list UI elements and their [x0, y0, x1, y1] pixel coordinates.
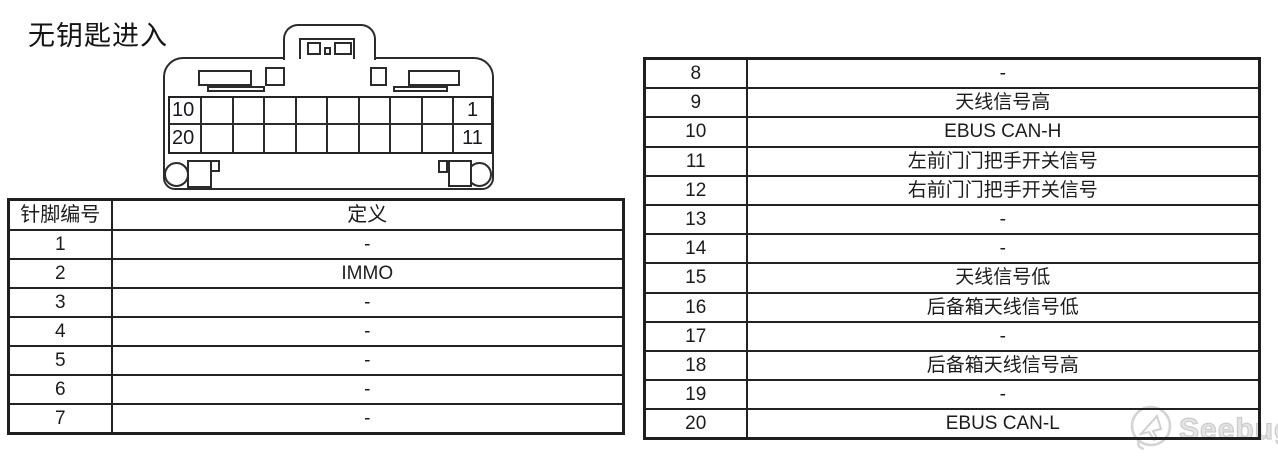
table-row: 17-	[645, 322, 1260, 351]
table-row: 6-	[9, 375, 624, 404]
table-row: 19-	[645, 380, 1260, 409]
pin-cell	[423, 98, 455, 125]
pin-number-cell: 15	[645, 263, 747, 292]
table-row: 8-	[645, 59, 1260, 89]
pin-definition-cell: 天线信号高	[747, 88, 1260, 117]
pin-number-cell: 10	[645, 117, 747, 146]
pin-number-cell: 5	[9, 346, 112, 375]
pin-cell	[391, 98, 423, 125]
table-row: 15天线信号低	[645, 263, 1260, 292]
table-row: 14-	[645, 234, 1260, 263]
table-row: 16后备箱天线信号低	[645, 293, 1260, 322]
table-row: 7-	[9, 404, 624, 434]
connector-tab-right-lip	[393, 86, 448, 92]
table-row: 18后备箱天线信号高	[645, 351, 1260, 380]
connector-square-right	[370, 67, 387, 86]
pin-cell: 11	[454, 125, 491, 152]
pin-definition-cell: 后备箱天线信号低	[747, 293, 1260, 322]
pin-definition-cell: -	[112, 288, 624, 317]
table-row: 1-	[9, 230, 624, 259]
connector-tab-left	[198, 70, 252, 86]
pin-cell	[297, 98, 329, 125]
pin-cell: 20	[170, 125, 202, 152]
pin-cell	[328, 98, 360, 125]
pin-definition-cell: -	[112, 346, 624, 375]
pin-definition-cell: -	[112, 317, 624, 346]
pin-cell	[391, 125, 423, 152]
pin-definition-cell: EBUS CAN-H	[747, 117, 1260, 146]
pin-number-cell: 17	[645, 322, 747, 351]
pin-definition-cell: EBUS CAN-L	[747, 409, 1260, 439]
pin-cell	[234, 98, 266, 125]
pin-definition-cell: 天线信号低	[747, 263, 1260, 292]
pin-cell	[265, 125, 297, 152]
pin-definition-cell: 左前门门把手开关信号	[747, 147, 1260, 176]
pin-definition-cell: -	[747, 322, 1260, 351]
pin-cell	[265, 98, 297, 125]
pin-cell	[328, 125, 360, 152]
pin-cell: 1	[454, 98, 491, 125]
connector-diagram: 1012011	[163, 15, 497, 195]
table-row: 20EBUS CAN-L	[645, 409, 1260, 439]
pin-number-cell: 14	[645, 234, 747, 263]
table-row: 4-	[9, 317, 624, 346]
pin-definition-cell: 后备箱天线信号高	[747, 351, 1260, 380]
pin-number-cell: 8	[645, 59, 747, 89]
connector-foot-circle-left	[164, 162, 189, 187]
document-page: 无钥匙进入 Seebug 1012011	[0, 0, 1278, 457]
pin-cell	[202, 125, 234, 152]
pin-number-cell: 20	[645, 409, 747, 439]
connector-foot-rect-left	[187, 160, 212, 188]
connector-latch-square-right	[334, 42, 352, 55]
table-row: 9天线信号高	[645, 88, 1260, 117]
pin-number-cell: 6	[9, 375, 112, 404]
table-row: 10EBUS CAN-H	[645, 117, 1260, 146]
pin-number-cell: 1	[9, 230, 112, 259]
page-title: 无钥匙进入	[28, 14, 168, 53]
table-row: 5-	[9, 346, 624, 375]
pin-number-cell: 2	[9, 259, 112, 288]
pin-number-cell: 18	[645, 351, 747, 380]
pin-cell	[234, 125, 266, 152]
pin-number-cell: 4	[9, 317, 112, 346]
pin-cell	[360, 125, 392, 152]
pin-definition-table-left: 针脚编号 定义 1-2IMMO3-4-5-6-7-	[7, 198, 625, 435]
pin-number-cell: 16	[645, 293, 747, 322]
pin-definition-cell: -	[112, 230, 624, 259]
definition-header: 定义	[112, 200, 624, 231]
pin-definition-table-right: 8-9天线信号高10EBUS CAN-H11左前门门把手开关信号12右前门门把手…	[643, 57, 1261, 440]
pin-number-cell: 7	[9, 404, 112, 434]
table-row: 13-	[645, 205, 1260, 234]
table-row: 3-	[9, 288, 624, 317]
pin-cell	[360, 98, 392, 125]
pin-definition-cell: -	[747, 59, 1260, 89]
connector-tab-right	[408, 70, 460, 86]
pin-cell	[202, 98, 234, 125]
connector-tab-left-lip	[207, 86, 265, 92]
pin-definition-cell: IMMO	[112, 259, 624, 288]
pin-number-cell: 19	[645, 380, 747, 409]
pin-cell	[423, 125, 455, 152]
connector-foot-notch-right	[438, 160, 448, 173]
connector-foot-rect-right	[448, 160, 472, 187]
pin-cell: 10	[170, 98, 202, 125]
pin-definition-cell: 右前门门把手开关信号	[747, 176, 1260, 205]
connector-latch-square-middle	[324, 47, 331, 55]
pin-number-header: 针脚编号	[9, 200, 112, 231]
table-row: 2IMMO	[9, 259, 624, 288]
pin-number-cell: 13	[645, 205, 747, 234]
pin-definition-cell: -	[112, 404, 624, 434]
pin-number-cell: 9	[645, 88, 747, 117]
table-header-row: 针脚编号 定义	[9, 200, 624, 231]
pin-definition-cell: -	[747, 234, 1260, 263]
connector-square-left	[265, 67, 285, 86]
pin-definition-cell: -	[112, 375, 624, 404]
pin-number-cell: 12	[645, 176, 747, 205]
connector-latch-square-left	[307, 42, 321, 55]
pin-number-cell: 11	[645, 147, 747, 176]
pin-grid: 1012011	[168, 96, 493, 154]
pin-cell	[297, 125, 329, 152]
pin-definition-cell: -	[747, 205, 1260, 234]
table-row: 11左前门门把手开关信号	[645, 147, 1260, 176]
pin-definition-cell: -	[747, 380, 1260, 409]
table-row: 12右前门门把手开关信号	[645, 176, 1260, 205]
pin-number-cell: 3	[9, 288, 112, 317]
